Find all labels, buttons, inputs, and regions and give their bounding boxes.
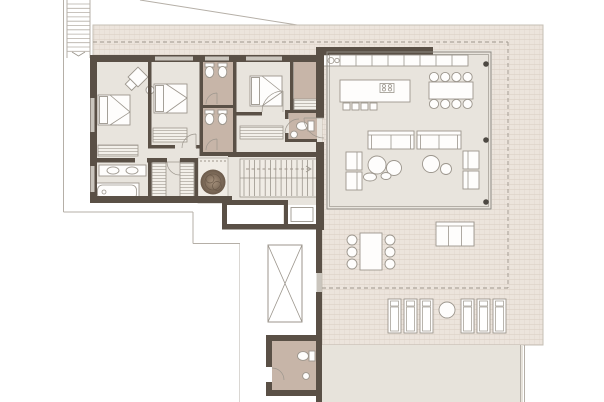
dining-table <box>429 82 473 99</box>
sun-lounger-pad <box>391 307 399 331</box>
sun-lounger-pad <box>464 307 472 331</box>
guest-bathroom-floor <box>272 341 316 391</box>
elevator-shaft <box>288 205 316 224</box>
toilet-1 <box>205 66 214 77</box>
sun-lounger <box>461 299 474 333</box>
floor-plan-drawing <box>0 0 604 402</box>
storage-room <box>228 205 283 224</box>
outdoor-lounge <box>436 222 474 246</box>
outdoor-dining <box>347 233 395 270</box>
bed-2-pillow <box>156 86 164 112</box>
bed-3-pillow <box>252 78 260 105</box>
bar-stool <box>361 103 368 110</box>
dining-chair <box>452 99 461 108</box>
sun-lounger <box>420 299 433 333</box>
dining-chair <box>429 99 438 108</box>
dining-chair <box>429 72 438 81</box>
bar-stool <box>370 103 377 110</box>
sun-lounger-headrest <box>391 301 399 306</box>
bedroom-3 <box>250 76 282 106</box>
dining-chair <box>441 99 450 108</box>
outdoor-dining-chair <box>385 235 395 245</box>
hall-sideboard <box>240 126 283 139</box>
wardrobe-dressing-left <box>152 160 166 200</box>
skylight-void <box>268 245 302 322</box>
sun-lounger <box>404 299 417 333</box>
site-diagonal-line <box>140 0 310 27</box>
bedroom-2 <box>153 84 187 142</box>
sun-lounger <box>477 299 490 333</box>
outdoor-dining-chair <box>347 259 357 269</box>
kitchen-counter <box>322 55 468 66</box>
sun-lounger-headrest <box>407 301 415 306</box>
sun-lounger <box>493 299 506 333</box>
outdoor-dining-chair <box>347 247 357 257</box>
guest-washbasin <box>303 373 310 380</box>
lounge-chair-3 <box>463 151 479 169</box>
wardrobe-dressing-right <box>180 160 194 200</box>
lounge-chair-4 <box>463 171 479 189</box>
dining-chair <box>463 72 472 81</box>
guest-toilet <box>298 352 309 361</box>
structural-column <box>483 199 489 205</box>
double-washbasin-counter <box>99 165 146 176</box>
exterior-stair-treads <box>67 4 90 51</box>
outdoor-dining-chair <box>347 235 357 245</box>
kitchen-island <box>340 80 410 102</box>
wc-washbasin <box>291 131 298 138</box>
coffee-table-4 <box>441 164 452 175</box>
sun-lounger-pad <box>496 307 504 331</box>
floor-plan-canvas <box>0 0 604 402</box>
coffee-table-3 <box>423 156 440 173</box>
coffee-table-1 <box>368 156 386 174</box>
bar-stool <box>352 103 359 110</box>
dining-chair <box>463 99 472 108</box>
outdoor-dining-table <box>360 233 382 270</box>
lawn-strip <box>322 345 525 402</box>
dining-chair <box>441 72 450 81</box>
toilet-2 <box>205 113 214 124</box>
bidet-1 <box>218 66 227 77</box>
bidet-2 <box>218 113 227 124</box>
washbasin-left <box>107 167 119 174</box>
dining-chair <box>452 72 461 81</box>
lounge-chair-1 <box>346 152 362 170</box>
sun-lounger-headrest <box>464 301 472 306</box>
pantry-shelves <box>294 99 318 110</box>
lounge-chair-2 <box>346 172 362 190</box>
bar-stool <box>343 103 350 110</box>
wardrobe-bedroom-2 <box>153 128 187 142</box>
sun-lounger-headrest <box>496 301 504 306</box>
sun-lounger-headrest <box>480 301 488 306</box>
bed-1-pillow <box>100 97 108 124</box>
structural-column <box>483 61 489 67</box>
washbasin-right <box>126 167 138 174</box>
sun-lounger <box>388 299 401 333</box>
sun-lounger-headrest <box>423 301 431 306</box>
outdoor-dining-chair <box>385 247 395 257</box>
round-side-table <box>439 302 455 318</box>
wardrobe-bedroom-1 <box>98 145 138 156</box>
main-bathroom <box>95 165 146 201</box>
sun-lounger-pad <box>423 307 431 331</box>
interior-staircase <box>240 159 318 197</box>
structural-column <box>483 137 489 143</box>
exterior-staircase <box>67 0 90 58</box>
sun-lounger-pad <box>407 307 415 331</box>
outdoor-dining-chair <box>385 259 395 269</box>
sun-lounger-pad <box>480 307 488 331</box>
